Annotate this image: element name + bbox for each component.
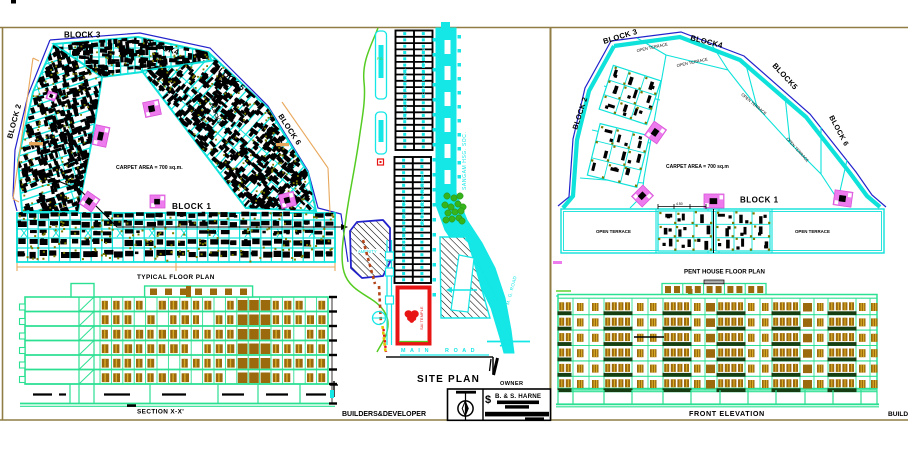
svg-text:OPEN TERRACE: OPEN TERRACE: [596, 229, 631, 234]
svg-text:OPEN TERRACE: OPEN TERRACE: [795, 229, 830, 234]
svg-text:P.G.: P.G.: [377, 57, 384, 61]
svg-text:BUILDERS&DEVELOPER: BUILDERS&DEVELOPER: [342, 411, 426, 418]
svg-text:COVERED PARKING: COVERED PARKING: [402, 199, 407, 251]
svg-text:4.50: 4.50: [676, 202, 683, 206]
svg-text:SAI TEMPLE: SAI TEMPLE: [419, 306, 424, 330]
svg-text:SITE PLAN: SITE PLAN: [417, 374, 480, 385]
svg-text:CARPET AREA = 700 sq.m: CARPET AREA = 700 sq.m: [666, 164, 729, 170]
svg-text:$: $: [485, 394, 491, 406]
svg-text:R O A D: R O A D: [445, 348, 476, 354]
svg-text:BUILDERS: BUILDERS: [888, 411, 908, 418]
svg-text:OWNER: OWNER: [500, 381, 523, 387]
svg-text:COVERED PARKING: COVERED PARKING: [420, 174, 425, 226]
svg-text:B. & S. HARNE: B. & S. HARNE: [495, 393, 541, 400]
svg-text:CARPET AREA = 700 sq.m.: CARPET AREA = 700 sq.m.: [116, 165, 183, 171]
svg-text:SANGAM HSG. SOC.: SANGAM HSG. SOC.: [462, 132, 468, 191]
svg-text:COVERED PARKING: COVERED PARKING: [421, 44, 426, 96]
svg-text:TYPICAL FLOOR PLAN: TYPICAL FLOOR PLAN: [137, 274, 215, 281]
svg-text:PENT HOUSE FLOOR PLAN: PENT HOUSE FLOOR PLAN: [684, 269, 765, 276]
svg-text:FRONT ELEVATION: FRONT ELEVATION: [689, 409, 765, 418]
svg-text:COVERED PARKING: COVERED PARKING: [403, 68, 408, 120]
svg-text:BLOCK 1: BLOCK 1: [172, 202, 211, 211]
svg-text:BLOCK 3: BLOCK 3: [64, 31, 101, 40]
svg-text:M A I N: M A I N: [401, 348, 430, 354]
svg-text:SECTION X-X': SECTION X-X': [137, 409, 184, 416]
svg-text:BLOCK 1: BLOCK 1: [740, 196, 779, 205]
